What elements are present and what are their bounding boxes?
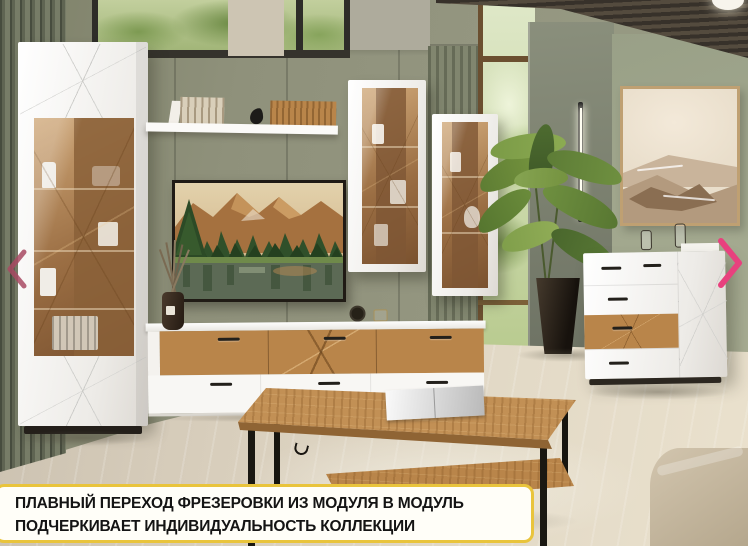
chevron-right-icon: [715, 236, 745, 290]
wall-pillar: [228, 0, 284, 56]
chevron-left-shape: [10, 252, 24, 286]
drawer-seam: [376, 329, 377, 373]
vase-body: [162, 292, 184, 330]
table-hook: [293, 442, 309, 456]
caption-line-2: ПОДЧЕРКИВАЕТ ИНДИВИДУАЛЬНОСТЬ КОЛЛЕКЦИИ: [15, 516, 504, 539]
drawer-handle: [210, 383, 232, 386]
drawer-handle: [643, 264, 661, 267]
window-beam: [478, 56, 530, 62]
drawer-handle: [612, 326, 632, 329]
drawer-handle: [218, 338, 240, 341]
glass-sheen: [362, 88, 418, 264]
drawer-seam: [268, 330, 269, 374]
cabinet-bottom-milled-panel: [20, 356, 146, 426]
vase-label: [166, 306, 175, 315]
drawer-handle: [324, 337, 346, 340]
wall-top-band: [350, 0, 430, 50]
decor-lantern: [641, 230, 652, 250]
magazine-fold: [433, 388, 436, 418]
hanging-cabinet-1: [348, 80, 426, 272]
wall-tv: [172, 180, 346, 302]
decor-lantern: [373, 309, 387, 321]
bird-figurine: [250, 108, 263, 124]
wall-shelf: [146, 96, 339, 147]
slide-caption: ПЛАВНЫЙ ПЕРЕХОД ФРЕЗЕРОВКИ ИЗ МОДУЛЯ В М…: [0, 484, 534, 543]
chest-drawer-1: [583, 252, 678, 287]
hanging-cabinet-glass: [362, 88, 418, 264]
chevron-right-shape: [721, 241, 739, 285]
drawer-handle: [608, 297, 628, 300]
caption-line-1: ПЛАВНЫЙ ПЕРЕХОД ФРЕЗЕРОВКИ ИЗ МОДУЛЯ В М…: [15, 493, 504, 516]
cabinet-shadow: [16, 430, 152, 446]
drawer-handle: [430, 336, 452, 339]
abstract-wall-art: [620, 86, 740, 226]
drawer-handle: [609, 361, 629, 364]
chest-drawer-4: [585, 348, 680, 381]
chest-shadow: [586, 384, 730, 400]
twig-vase: [154, 240, 190, 332]
cabinet-top-milled-panel: [20, 44, 146, 118]
chest-of-drawers: [583, 223, 728, 391]
carousel-next-button[interactable]: [712, 236, 748, 288]
table-leg: [540, 442, 547, 546]
glass-sheen: [34, 118, 134, 356]
chest-drawer-2: [584, 284, 679, 317]
plant-pot: [532, 278, 584, 354]
tv-landscape-image: [175, 183, 343, 299]
catalog-slide: ПЛАВНЫЙ ПЕРЕХОД ФРЕЗЕРОВКИ ИЗ МОДУЛЯ В М…: [0, 0, 748, 546]
magazine: [385, 385, 484, 420]
cabinet-glass-door: [34, 118, 134, 356]
chest-body: [583, 251, 727, 379]
sofa-seam: [656, 446, 744, 477]
chest-oak-drawer: [584, 314, 679, 350]
sofa-corner: [650, 448, 748, 546]
carousel-prev-button[interactable]: [0, 244, 36, 296]
display-cabinet-left: [18, 42, 148, 436]
drawer-handle: [601, 267, 621, 270]
chevron-left-icon: [3, 247, 33, 291]
decor-clock: [349, 306, 365, 322]
stand-oak-drawer-row: [160, 329, 484, 376]
shelf-oak-slats: [270, 100, 336, 126]
books: [180, 97, 224, 125]
